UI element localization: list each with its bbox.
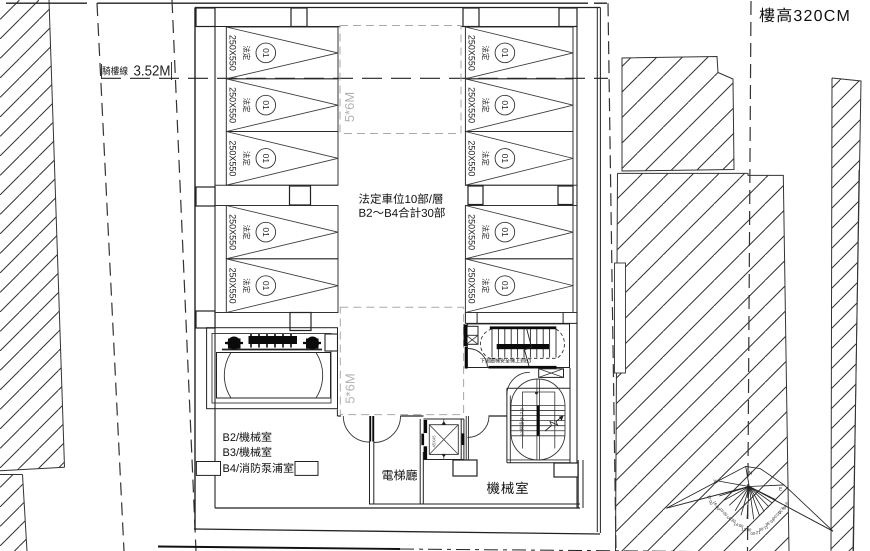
svg-text:01: 01 [500,281,510,291]
svg-text:法定: 法定 [242,98,252,113]
svg-text:250X550: 250X550 [467,35,477,71]
svg-text:250X550: 250X550 [228,140,238,176]
svg-text:01: 01 [500,100,510,110]
svg-text:01: 01 [261,100,271,110]
svg-text:法定: 法定 [242,151,252,166]
svg-text:12梯級@17.3: 12梯級@17.3 [519,408,526,436]
svg-text:B3/機械室: B3/機械室 [222,445,272,459]
svg-text:250X550: 250X550 [467,140,477,176]
svg-text:250X550: 250X550 [467,268,477,304]
svg-text:騎樓線: 騎樓線 [102,65,128,78]
svg-text:250X550: 250X550 [467,214,477,250]
svg-text:法定: 法定 [242,278,252,293]
svg-text:250X550: 250X550 [467,87,477,123]
svg-text:電梯廳: 電梯廳 [381,468,417,483]
svg-text:法定: 法定 [481,151,491,166]
svg-text:01: 01 [261,154,271,164]
svg-text:5*6M: 5*6M [343,373,358,403]
svg-text:01: 01 [500,154,510,164]
svg-text:B4/消防泵浦室: B4/消防泵浦室 [222,461,294,475]
svg-text:法定: 法定 [242,45,252,60]
svg-text:250X550: 250X550 [228,268,238,304]
svg-text:N: N [748,471,752,477]
svg-text:5*6M: 5*6M [342,92,357,122]
svg-text:01: 01 [261,281,271,291]
svg-text:法定車位10部/層: 法定車位10部/層 [358,192,443,206]
svg-text:45X45: 45X45 [432,435,437,448]
svg-text:01: 01 [500,227,510,237]
svg-text:250X550: 250X550 [228,87,238,123]
svg-text:3.52M: 3.52M [133,64,170,80]
svg-text:法定: 法定 [481,278,491,293]
svg-text:W: W [713,479,718,485]
svg-text:250X550: 250X550 [228,214,238,250]
svg-text:01: 01 [261,227,271,237]
svg-text:B2/機械室: B2/機械室 [222,430,272,444]
svg-text:機械室: 機械室 [486,480,529,496]
svg-text:下廻圈梯安全梯上到B3: 下廻圈梯安全梯上到B3 [480,358,531,365]
svg-text:樓高320CM: 樓高320CM [759,7,851,25]
svg-text:01: 01 [500,48,510,58]
svg-text:250X550: 250X550 [228,35,238,71]
svg-text:法定: 法定 [242,225,252,240]
svg-text:01: 01 [261,48,271,58]
svg-text:法定: 法定 [481,98,491,113]
svg-text:法定: 法定 [481,225,491,240]
svg-text:法定: 法定 [481,45,491,60]
svg-text:B2～B4合計30部: B2～B4合計30部 [358,206,445,220]
